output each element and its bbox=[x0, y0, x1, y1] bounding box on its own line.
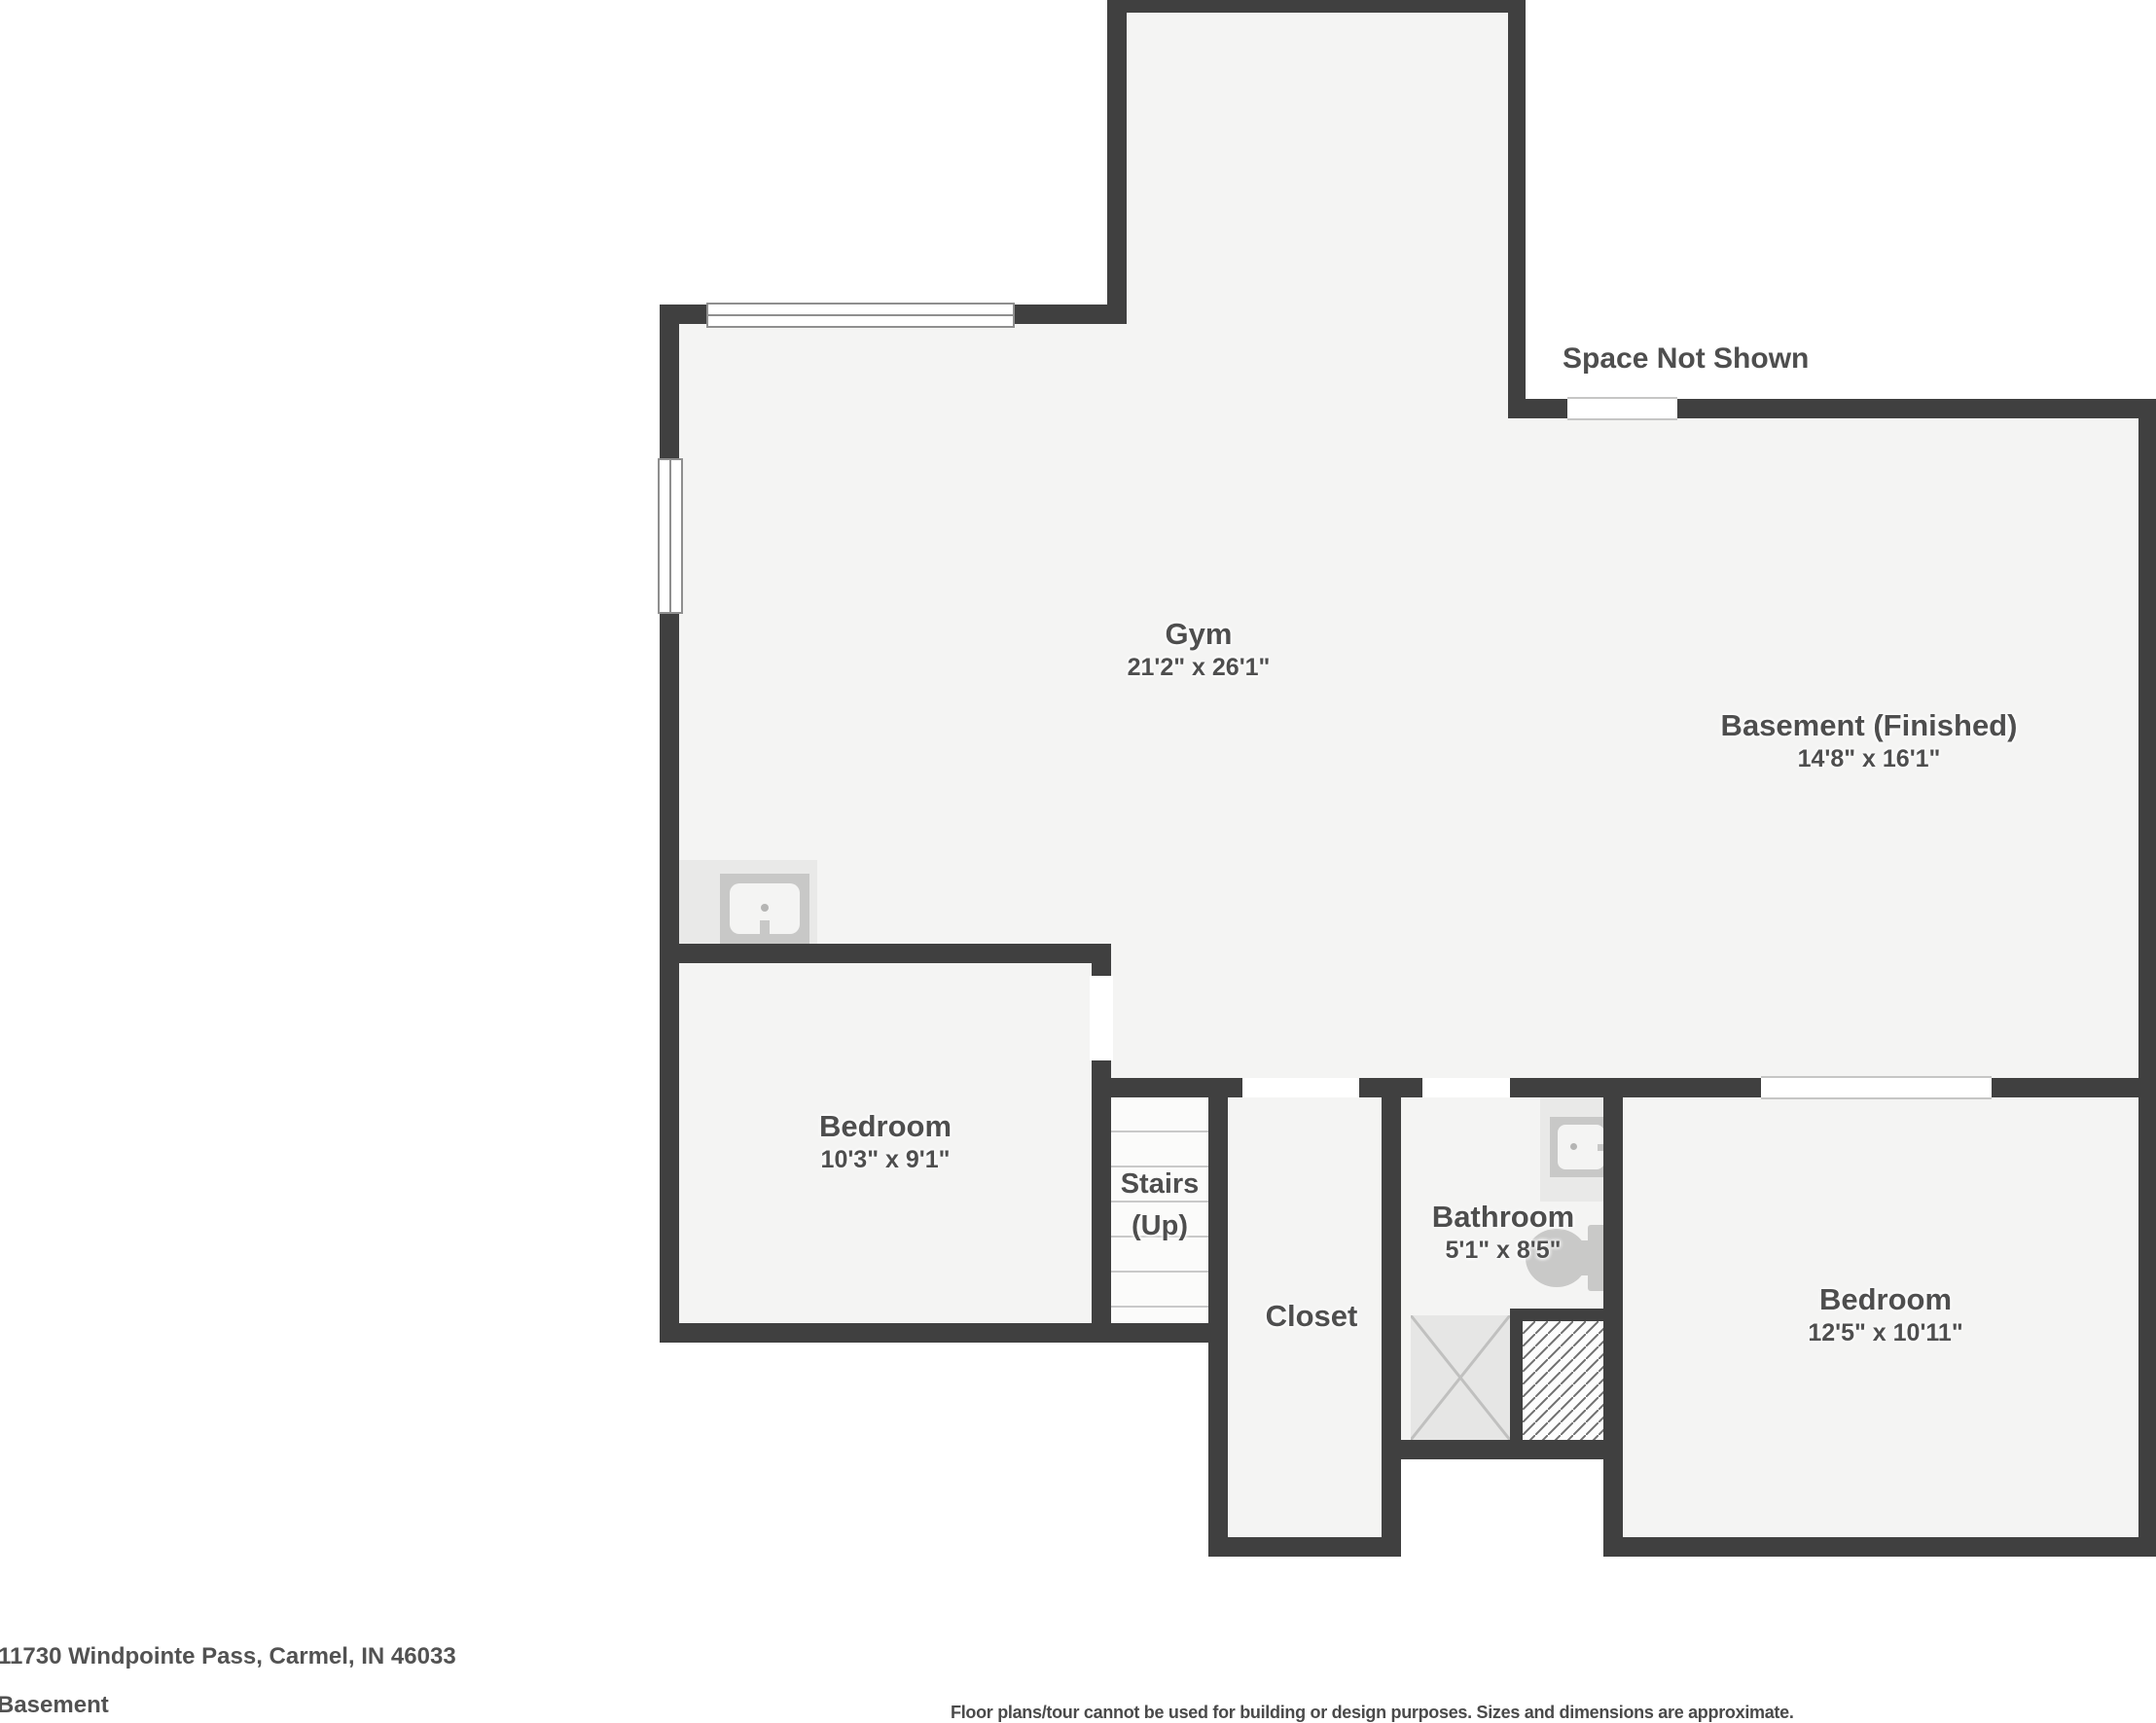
wall bbox=[1208, 1537, 1401, 1557]
door-opening bbox=[1242, 1078, 1359, 1097]
wall bbox=[660, 1323, 1228, 1343]
space-not-shown-label: Space Not Shown bbox=[1563, 342, 1809, 376]
wall bbox=[1603, 1537, 2156, 1557]
floorplan-canvas: Gym 21'2" x 26'1" Basement (Finished) 14… bbox=[0, 0, 2156, 1723]
room-name: Stairs bbox=[1121, 1164, 1200, 1205]
window bbox=[706, 303, 1015, 328]
window-mullion bbox=[669, 460, 671, 612]
wall-opening bbox=[1761, 1076, 1992, 1099]
window bbox=[658, 458, 683, 614]
room-name-2: (Up) bbox=[1121, 1205, 1200, 1247]
room-name: Bathroom bbox=[1432, 1199, 1574, 1235]
room-dimensions: 14'8" x 16'1" bbox=[1721, 743, 2018, 774]
wall bbox=[1107, 0, 1127, 324]
door-opening bbox=[1422, 1078, 1510, 1097]
room-label-basement-finished: Basement (Finished) 14'8" x 16'1" bbox=[1721, 707, 2018, 774]
room-label-bathroom: Bathroom 5'1" x 8'5" bbox=[1432, 1199, 1574, 1266]
address-text: 11730 Windpointe Pass, Carmel, IN 46033 bbox=[0, 1643, 456, 1670]
wall bbox=[1401, 1440, 1623, 1459]
wall bbox=[1510, 1309, 1623, 1321]
room-name: Bedroom bbox=[1808, 1281, 1962, 1317]
room-dimensions: 5'1" x 8'5" bbox=[1432, 1235, 1574, 1266]
room-dimensions: 12'5" x 10'11" bbox=[1808, 1317, 1962, 1348]
room-dimensions: 10'3" x 9'1" bbox=[819, 1144, 952, 1175]
wall bbox=[1107, 0, 1526, 13]
floor-level-text: Basement bbox=[0, 1692, 109, 1719]
sink-drain bbox=[1570, 1143, 1577, 1150]
wall bbox=[2138, 399, 2156, 1557]
hatched-area bbox=[1523, 1321, 1603, 1440]
appliance-dot bbox=[761, 904, 769, 912]
room-label-bedroom-left: Bedroom 10'3" x 9'1" bbox=[819, 1108, 952, 1175]
wall-opening bbox=[1567, 397, 1677, 420]
room-label-gym: Gym 21'2" x 26'1" bbox=[1128, 616, 1271, 683]
water-heater-icon bbox=[720, 874, 809, 946]
room-label-closet: Closet bbox=[1266, 1298, 1358, 1334]
room-name: Closet bbox=[1266, 1298, 1358, 1334]
shower-icon bbox=[1411, 1315, 1510, 1440]
room-name: Gym bbox=[1128, 616, 1271, 652]
disclaimer-text: Floor plans/tour cannot be used for buil… bbox=[951, 1703, 1794, 1723]
room-name: Bedroom bbox=[819, 1108, 952, 1144]
wall bbox=[1510, 1315, 1523, 1440]
room-name: Basement (Finished) bbox=[1721, 707, 2018, 743]
wall bbox=[1508, 0, 1526, 418]
wall bbox=[1208, 1078, 1228, 1557]
door-opening bbox=[1090, 976, 1113, 1060]
appliance-notch bbox=[760, 920, 770, 946]
wall bbox=[660, 944, 1111, 963]
window-mullion bbox=[708, 314, 1013, 316]
wall bbox=[1382, 1078, 1401, 1557]
room-label-stairs: Stairs (Up) bbox=[1121, 1164, 1200, 1247]
room-label-bedroom-right: Bedroom 12'5" x 10'11" bbox=[1808, 1281, 1962, 1348]
room-dimensions: 21'2" x 26'1" bbox=[1128, 652, 1271, 683]
